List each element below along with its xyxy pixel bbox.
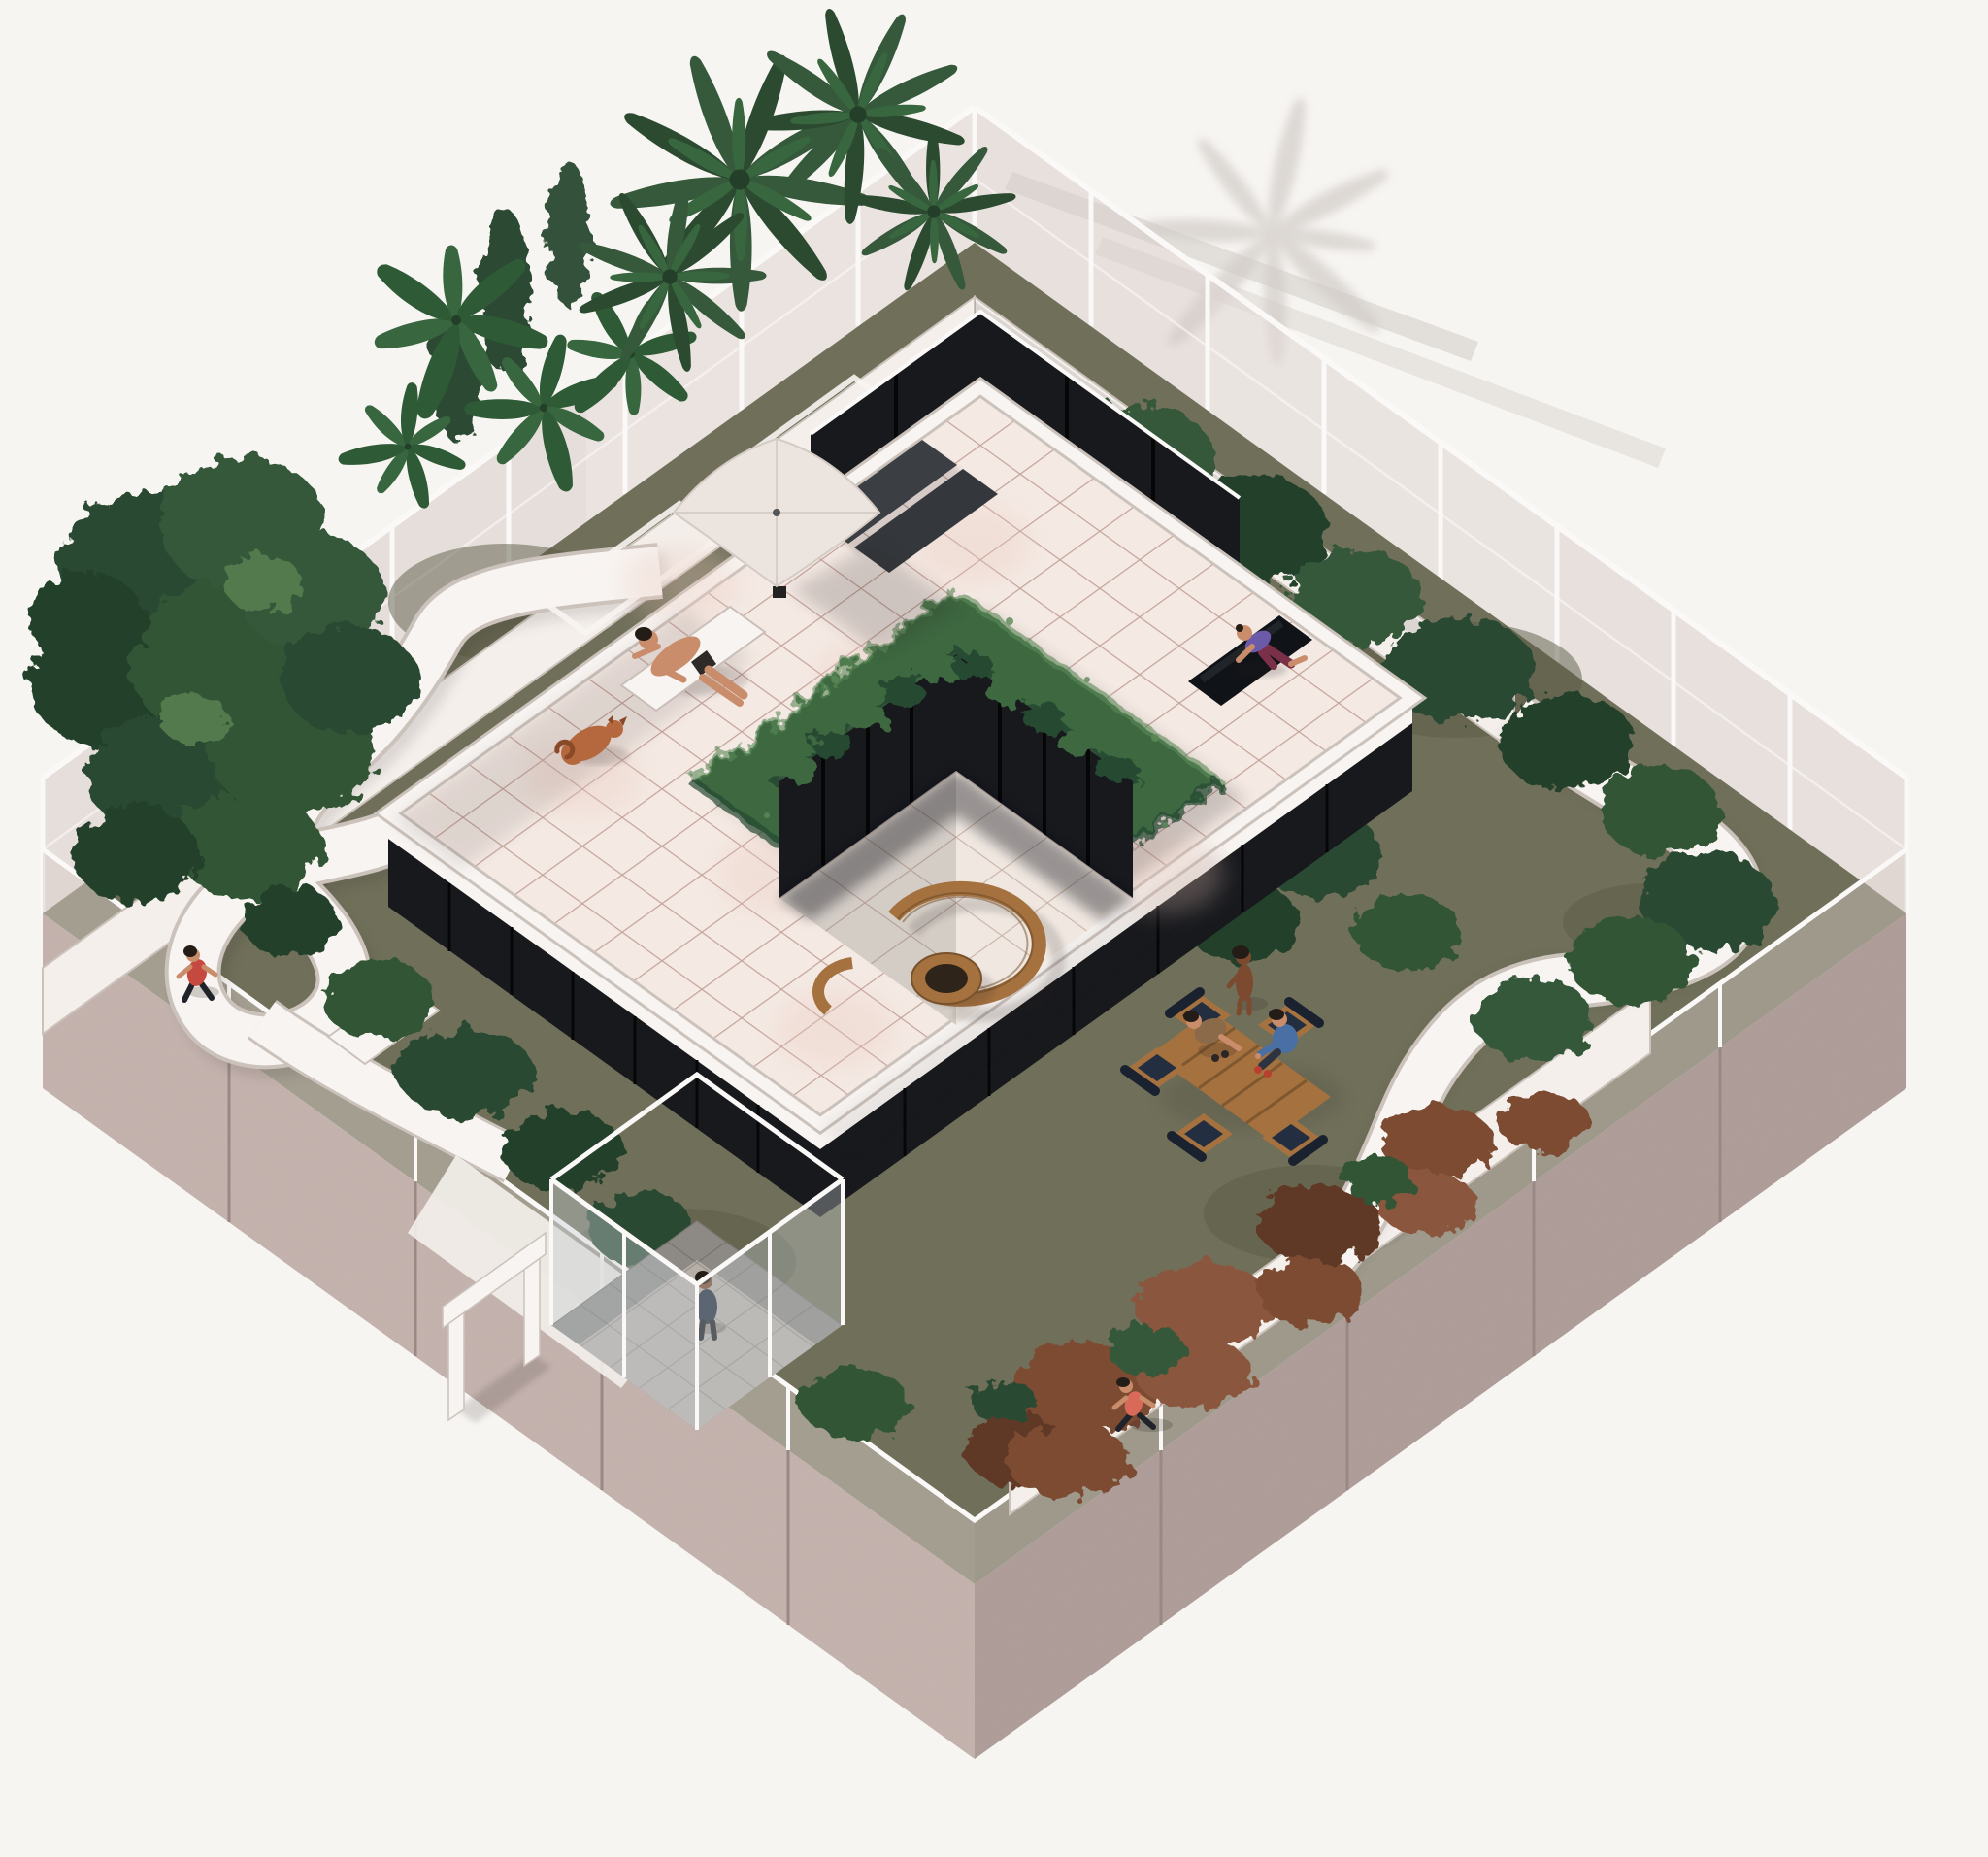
tile-blotch [777,990,893,1068]
rust-shrub [1006,1424,1130,1498]
vine-drape [811,730,853,757]
foliage-blob [972,1381,1038,1424]
hand [1255,1053,1261,1059]
foliage-blob [73,806,199,903]
speckle [831,676,839,683]
foliage-highlight [159,693,229,744]
vine-drape [881,680,924,707]
vine-drape [952,653,995,680]
tile-blotch [621,544,738,621]
vine-drape [776,755,818,782]
shoe [1254,1066,1262,1074]
foliage-blob [243,887,340,957]
foliage-blob [800,1368,909,1438]
tall-shrub [547,160,589,306]
body [1236,964,1253,1001]
rust-shrub [1497,1092,1590,1150]
foliage-blob [1600,766,1720,855]
rust-shrub [1256,1258,1365,1324]
foliage-blob [1343,1156,1413,1203]
shoe [1264,1070,1272,1078]
foliage-blob [1569,916,1693,1006]
hair [635,627,652,641]
dog-head [606,720,623,738]
shadow [1237,662,1287,678]
foliage-blob [1353,893,1462,971]
hair [1232,945,1249,959]
speckle [1162,822,1168,828]
hair [1116,1377,1130,1387]
foliage-blob [1500,694,1636,791]
parasol-pole [773,509,780,516]
foliage-blob [1475,977,1592,1062]
speckle [1084,677,1090,682]
hair [1183,1011,1199,1022]
speckle [764,812,770,818]
hair [1269,1009,1284,1020]
speckle [1151,734,1159,742]
foliage-blob [29,573,146,670]
foot [1211,1054,1219,1062]
vine-drape [1094,755,1137,782]
foliage-blob [503,1110,623,1191]
parasol-base [773,586,786,598]
vine-drape [1023,705,1066,732]
axonometric-rendering [0,0,1988,1857]
fire-table-center [925,964,968,993]
foliage-blob [322,961,435,1039]
speckle [1006,617,1013,625]
hair [183,945,197,957]
foliage-blob [1107,1324,1184,1375]
foliage-highlight [223,553,301,612]
foot [1221,1050,1229,1058]
vine-drape [1058,730,1101,757]
vine-drape [987,680,1030,707]
hair-bun [1236,624,1243,632]
vine-drape [846,705,889,732]
foliage-blob [398,1028,534,1117]
foliage-blob [282,626,417,733]
